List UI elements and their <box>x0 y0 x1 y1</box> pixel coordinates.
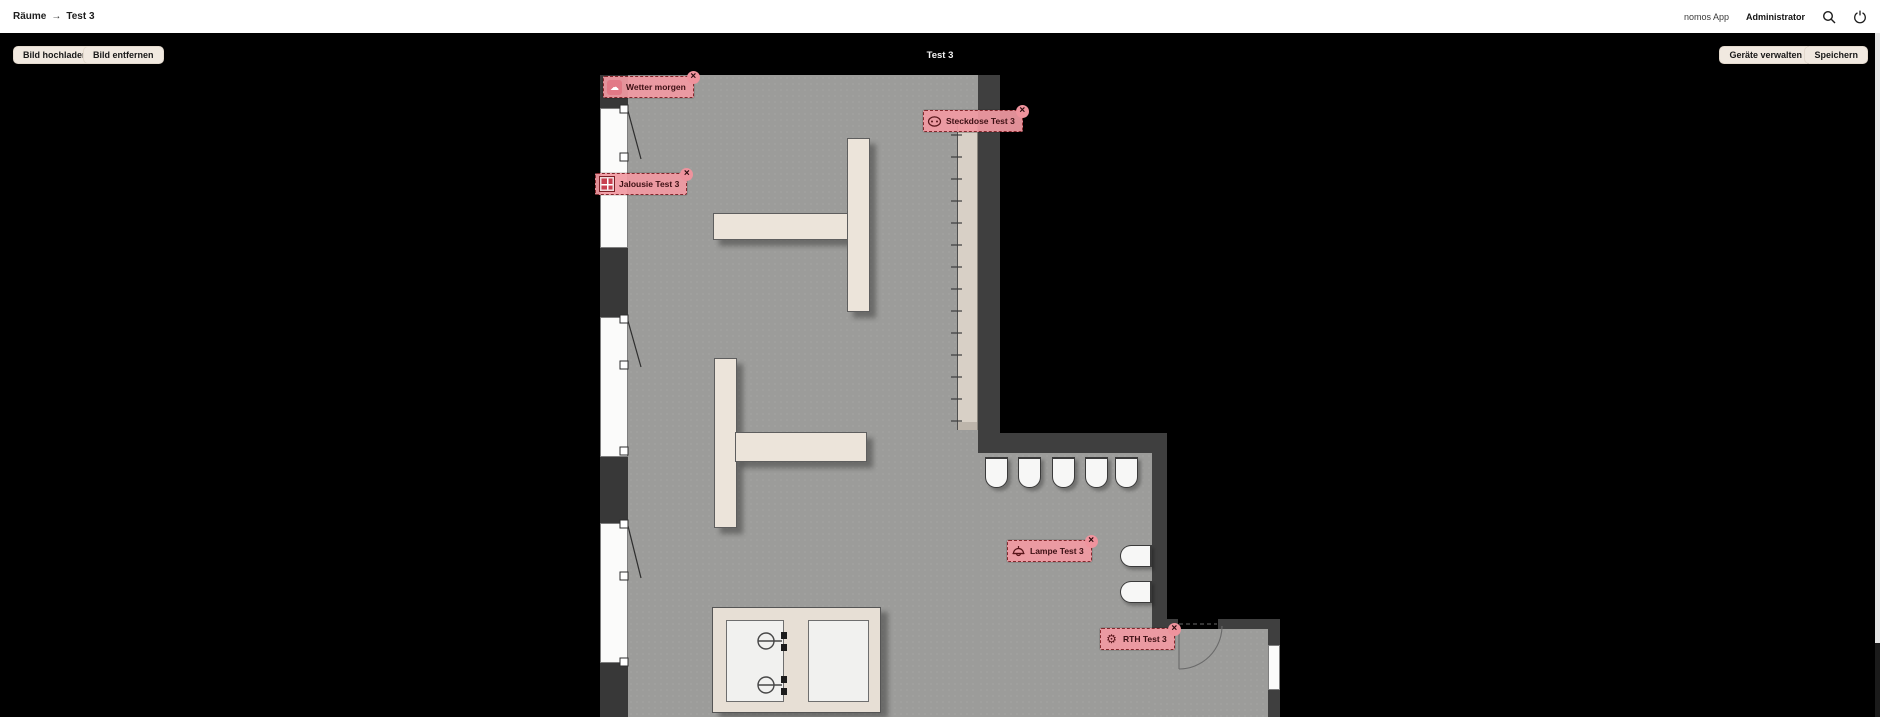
wall-segment <box>600 663 628 717</box>
socket-icon <box>927 114 942 129</box>
search-icon[interactable] <box>1822 10 1836 24</box>
power-icon[interactable] <box>1853 10 1867 24</box>
wall-segment <box>600 248 628 317</box>
user-menu[interactable]: Administrator <box>1746 12 1805 22</box>
close-icon[interactable]: × <box>1168 623 1181 636</box>
floorplan-image: ☁ Wetter morgen × Steckdose Test 3 × Jal… <box>600 75 1280 717</box>
wall-step-horizontal <box>978 433 1167 453</box>
app-name-label: nomos App <box>1684 12 1729 22</box>
scrollbar-track[interactable] <box>1875 33 1880 717</box>
wall-door-stub-right <box>1218 619 1270 629</box>
top-header: Räume → Test 3 nomos App Administrator <box>0 0 1880 33</box>
device-tag-wetter-morgen[interactable]: ☁ Wetter morgen × <box>603 76 694 98</box>
device-tag-label: Steckdose Test 3 <box>946 116 1015 126</box>
chair <box>1120 545 1152 567</box>
device-tag-steckdose[interactable]: Steckdose Test 3 × <box>923 110 1023 132</box>
breadcrumb-rooms-link[interactable]: Räume <box>13 11 46 22</box>
scrollbar-thumb[interactable] <box>1875 33 1880 643</box>
room-editor-canvas: Bild hochladen Bild entfernen Test 3 Ger… <box>0 33 1880 717</box>
chair <box>1052 457 1075 488</box>
table-mid-horizontal <box>735 432 867 462</box>
chair <box>1120 581 1152 603</box>
device-tag-label: Jalousie Test 3 <box>619 179 679 189</box>
close-icon[interactable]: × <box>687 71 700 84</box>
device-tag-lampe[interactable]: Lampe Test 3 × <box>1007 540 1092 562</box>
manage-devices-button[interactable]: Geräte verwalten <box>1719 46 1812 64</box>
table-top-vertical <box>847 138 870 312</box>
device-tag-label: Wetter morgen <box>626 82 686 92</box>
close-icon[interactable]: × <box>1016 105 1029 118</box>
wall-segment <box>1268 690 1280 717</box>
wall-segment <box>1268 619 1280 645</box>
chair <box>985 457 1008 488</box>
lamp-icon <box>1011 544 1026 559</box>
device-tag-label: Lampe Test 3 <box>1030 546 1084 556</box>
double-table <box>712 607 881 713</box>
wardrobe-rail <box>957 125 978 430</box>
window <box>600 317 628 457</box>
table-mid-vertical <box>714 358 737 528</box>
table-top-horizontal <box>713 213 852 240</box>
breadcrumb-current-room: Test 3 <box>66 11 94 22</box>
wall-segment <box>600 457 628 523</box>
breadcrumb-arrow-icon: → <box>51 11 61 22</box>
close-icon[interactable]: × <box>1085 535 1098 548</box>
chair <box>1115 457 1138 488</box>
breadcrumb: Räume → Test 3 <box>13 11 95 22</box>
device-tag-jalousie[interactable]: Jalousie Test 3 × <box>595 173 687 195</box>
cloud-icon: ☁ <box>607 80 622 95</box>
save-button[interactable]: Speichern <box>1804 46 1868 64</box>
device-tag-label: RTH Test 3 <box>1123 634 1167 644</box>
chair <box>1018 457 1041 488</box>
remove-image-button[interactable]: Bild entfernen <box>83 46 164 64</box>
gear-icon: ⚙ <box>1104 632 1119 647</box>
room-title: Test 3 <box>0 50 1880 61</box>
window <box>600 523 628 663</box>
window-small-room <box>1268 645 1280 690</box>
chair <box>1085 457 1108 488</box>
device-tag-rth[interactable]: ⚙ RTH Test 3 × <box>1100 628 1175 650</box>
blinds-icon <box>599 176 615 192</box>
wall-east-lower <box>1152 453 1167 629</box>
